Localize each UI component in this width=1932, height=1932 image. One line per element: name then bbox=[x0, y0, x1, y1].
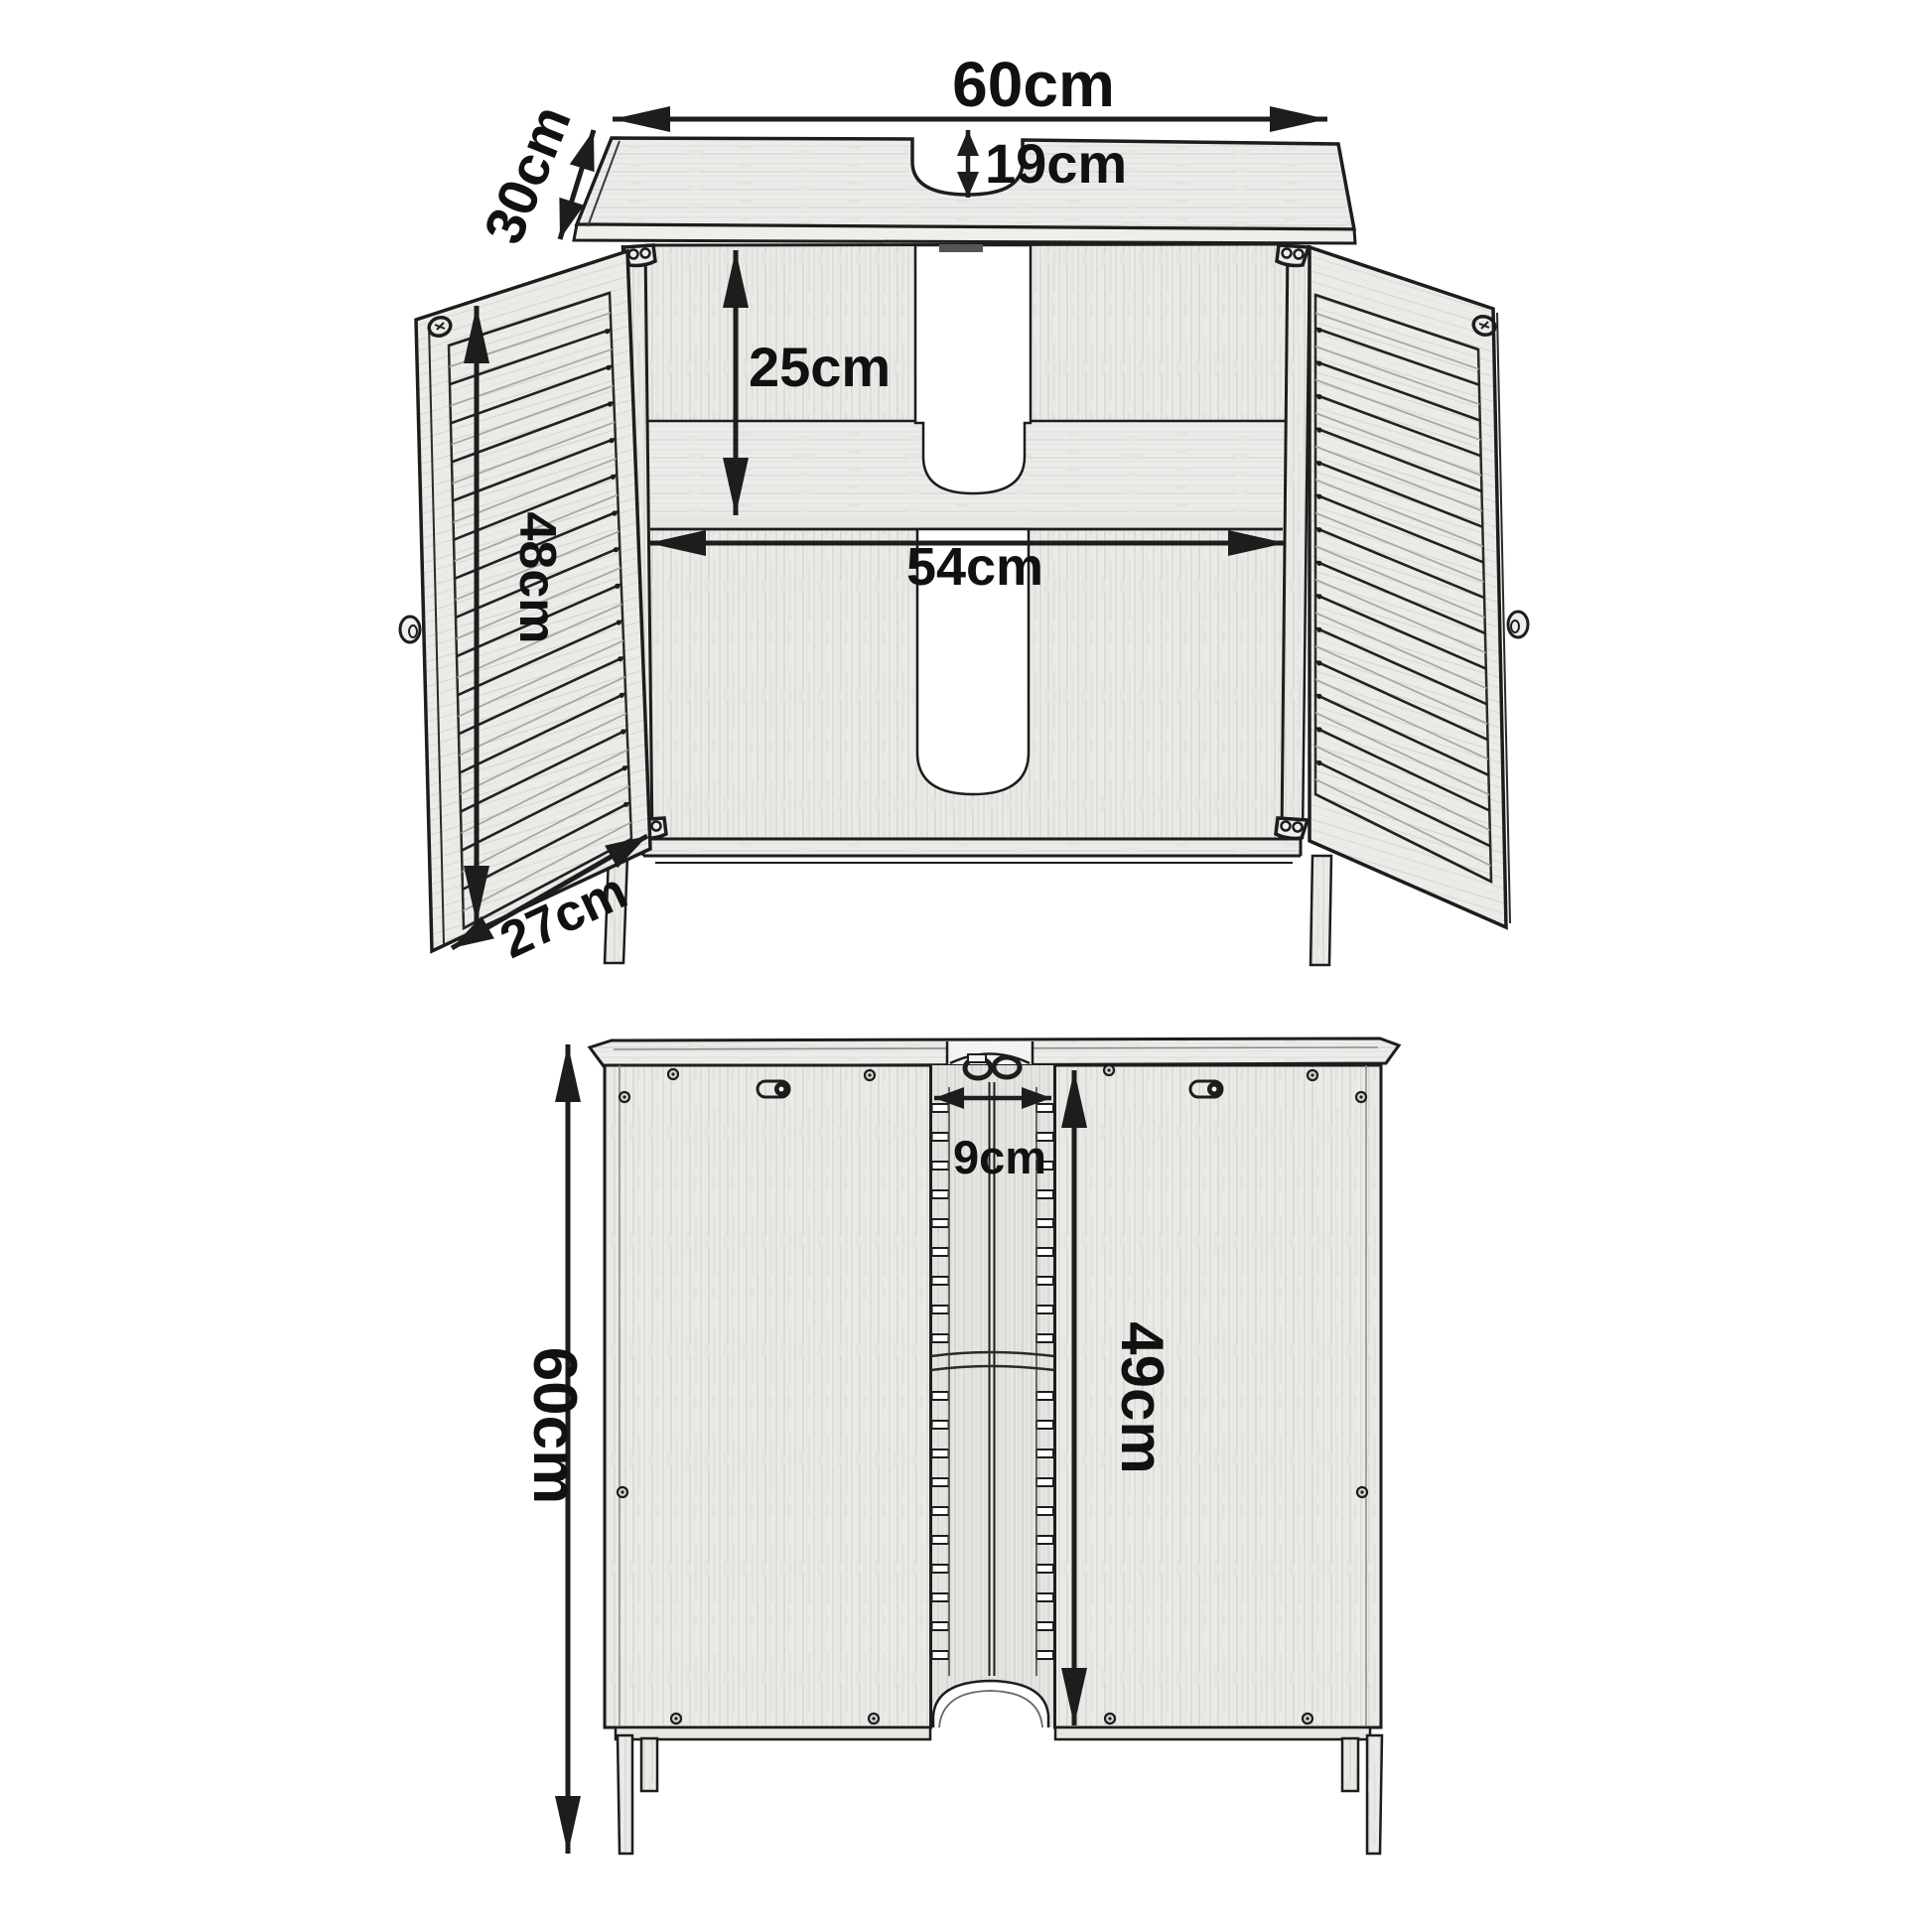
svg-text:60cm: 60cm bbox=[952, 49, 1115, 120]
svg-text:9cm: 9cm bbox=[953, 1131, 1046, 1183]
svg-text:60cm: 60cm bbox=[520, 1347, 589, 1505]
svg-text:48cm: 48cm bbox=[508, 512, 566, 644]
svg-text:25cm: 25cm bbox=[749, 336, 891, 398]
svg-text:19cm: 19cm bbox=[985, 132, 1127, 195]
svg-text:54cm: 54cm bbox=[906, 537, 1043, 597]
svg-text:49cm: 49cm bbox=[1109, 1321, 1175, 1473]
